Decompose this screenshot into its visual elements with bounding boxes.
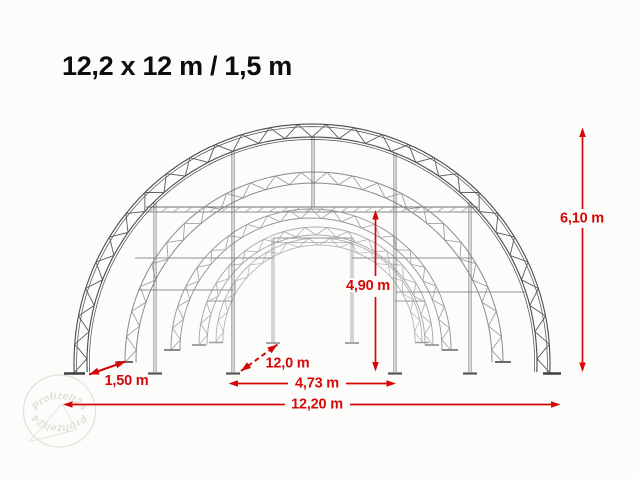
tent-frame-diagram: Profizelt24 Profizelt24 6,10 m 4,90 m 1,…	[0, 0, 639, 479]
foot-pads	[64, 343, 561, 374]
watermark: Profizelt24 Profizelt24	[24, 375, 96, 447]
total-height-label: 6,10 m	[560, 211, 604, 227]
watermark-brand-top: Profizelt24	[30, 390, 89, 413]
dim-total-height	[579, 128, 586, 373]
total-width-label: 12,20 m	[291, 397, 343, 413]
door-width-label: 4,73 m	[295, 376, 339, 392]
dimension-drawing: 12,2 x 12 m / 1,5 m Profizelt24 Profizel…	[0, 0, 639, 479]
length-label: 12,0 m	[266, 356, 310, 372]
arch-spacing-label: 1,50 m	[105, 373, 149, 389]
dimension-arrows	[63, 128, 586, 408]
truss-arch	[171, 209, 451, 350]
truss-arch	[216, 238, 422, 342]
clear-height-label: 4,90 m	[346, 278, 390, 294]
